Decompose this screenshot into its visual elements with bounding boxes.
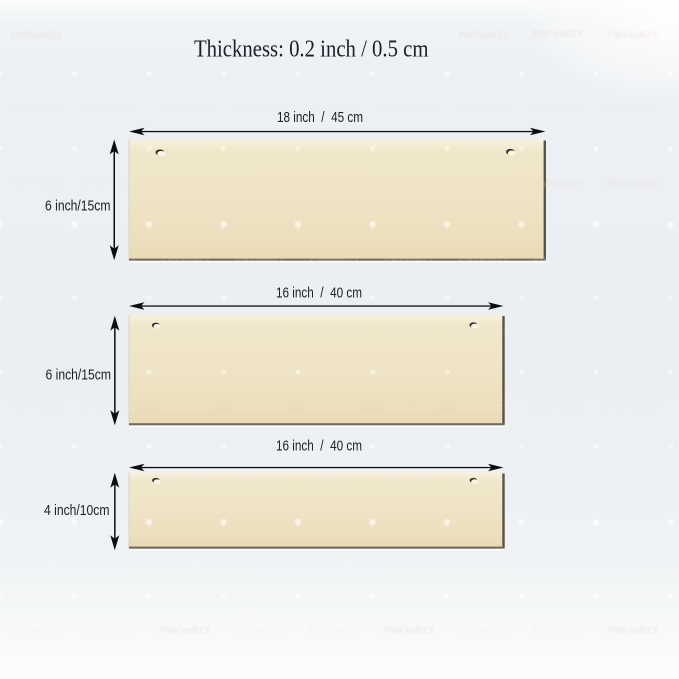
svg-text:PWFeoBZY: PWFeoBZY (608, 31, 659, 41)
svg-text:PWFeoBZY: PWFeoBZY (533, 180, 584, 190)
svg-text:PWFeoBZY: PWFeoBZY (533, 29, 584, 39)
svg-text:PWFeoBZY: PWFeoBZY (459, 31, 510, 41)
svg-text:PWFeoBZY: PWFeoBZY (608, 626, 659, 636)
svg-text:PWFeoBZY: PWFeoBZY (161, 626, 212, 636)
svg-text:PWFeoBZY: PWFeoBZY (384, 626, 435, 636)
svg-text:6 inch/15cm: 6 inch/15cm (46, 368, 112, 384)
svg-text:16 inch / 40 cm: 16 inch / 40 cm (276, 439, 362, 455)
svg-text:4 inch/10cm: 4 inch/10cm (44, 503, 110, 519)
svg-text:PWFeoBZY: PWFeoBZY (608, 180, 659, 190)
svg-text:16 inch / 40 cm: 16 inch / 40 cm (276, 286, 362, 302)
svg-text:Thickness: 0.2 inch / 0.5 cm: Thickness: 0.2 inch / 0.5 cm (194, 37, 429, 63)
svg-text:PWFeoBZY: PWFeoBZY (12, 31, 63, 41)
svg-text:18 inch / 45 cm: 18 inch / 45 cm (277, 110, 363, 126)
svg-text:6 inch/15cm: 6 inch/15cm (45, 199, 111, 215)
